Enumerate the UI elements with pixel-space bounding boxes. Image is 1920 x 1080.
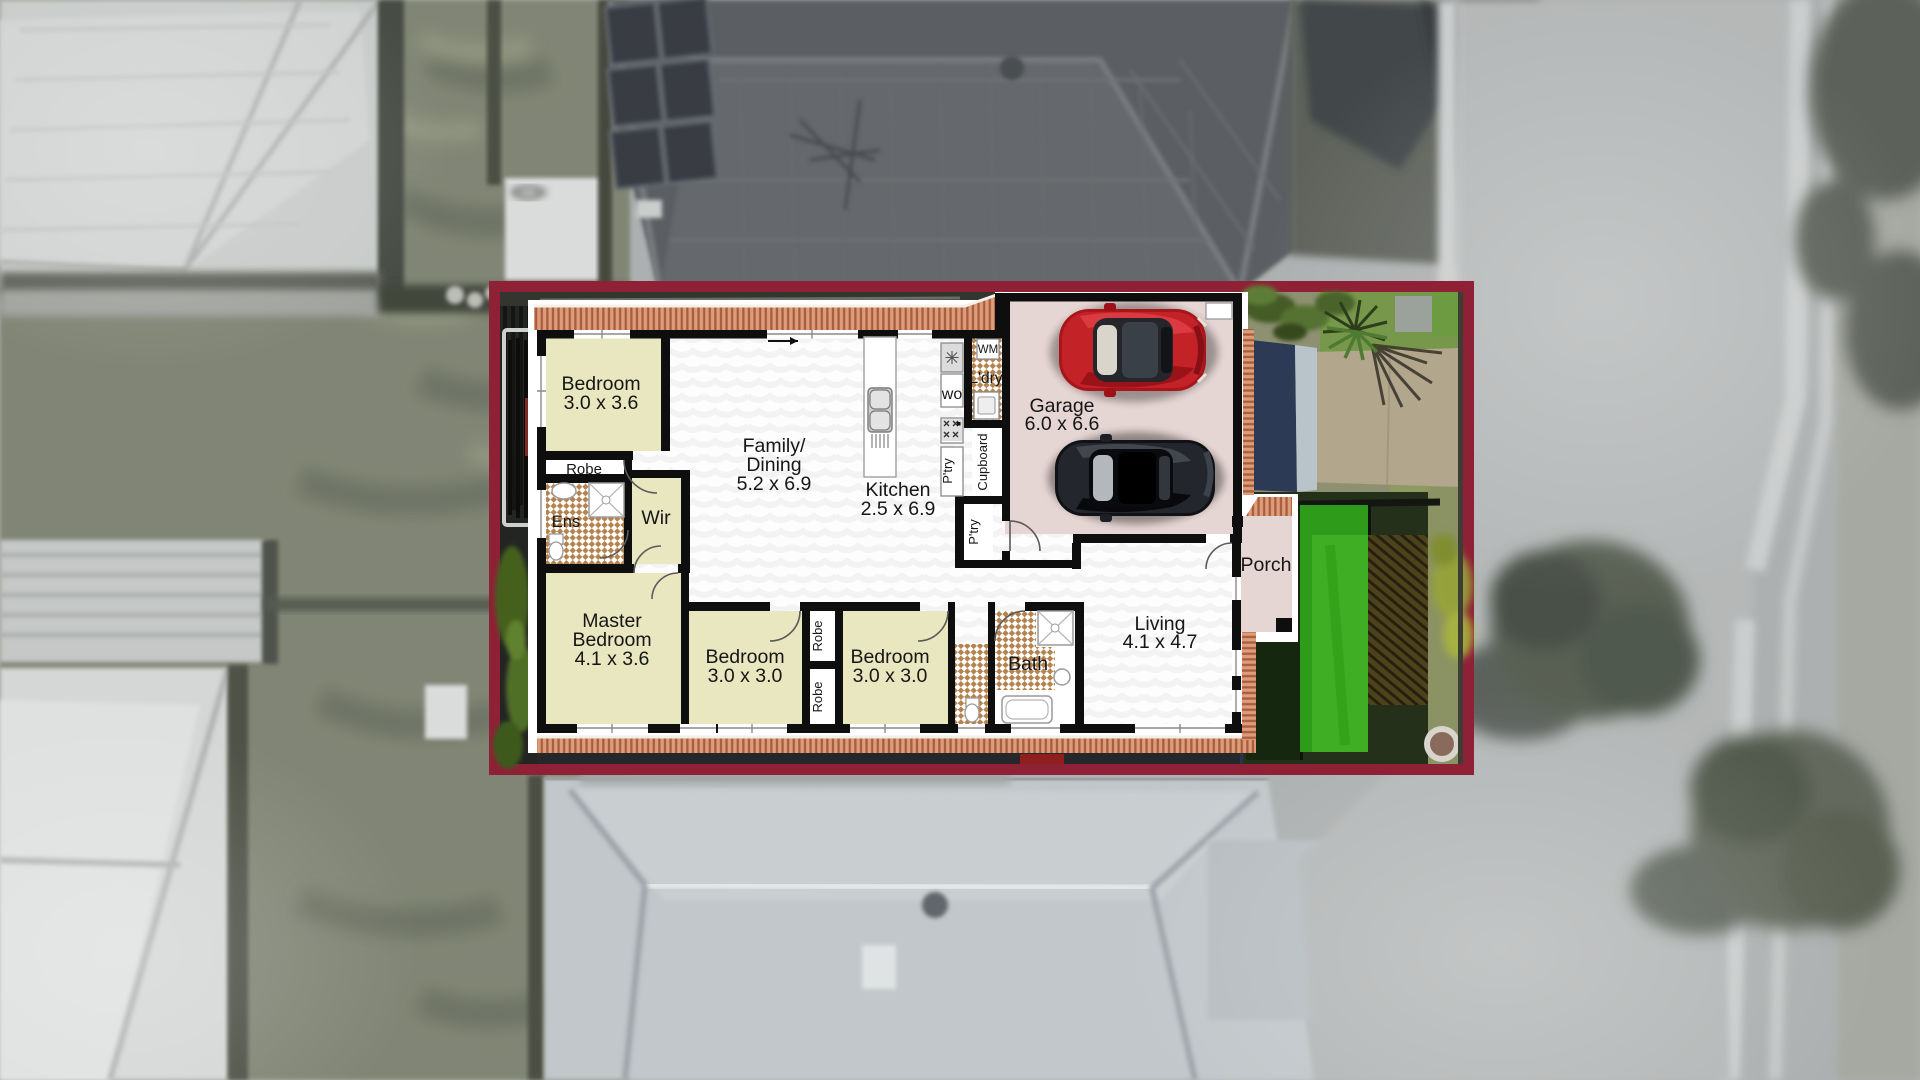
svg-text:3.0 x 3.0: 3.0 x 3.0 xyxy=(708,665,783,687)
svg-text:Porch: Porch xyxy=(1241,554,1292,576)
svg-text:Bath: Bath xyxy=(1008,653,1048,675)
svg-text:wo: wo xyxy=(941,386,963,403)
svg-text:Robe: Robe xyxy=(810,620,825,651)
svg-text:P'try: P'try xyxy=(940,458,955,484)
svg-text:WM: WM xyxy=(978,344,998,356)
svg-text:Robe: Robe xyxy=(810,681,825,712)
svg-text:4.1 x 4.7: 4.1 x 4.7 xyxy=(1123,631,1198,653)
svg-text:3.0 x 3.6: 3.0 x 3.6 xyxy=(564,392,639,414)
svg-text:6.0 x 6.6: 6.0 x 6.6 xyxy=(1025,413,1100,435)
svg-text:Robe: Robe xyxy=(566,461,602,478)
svg-text:3.0 x 3.0: 3.0 x 3.0 xyxy=(853,665,928,687)
svg-text:4.1 x 3.6: 4.1 x 3.6 xyxy=(575,648,650,670)
svg-text:L'dry: L'dry xyxy=(969,370,1002,387)
svg-text:Wir: Wir xyxy=(641,507,671,529)
svg-text:5.2 x 6.9: 5.2 x 6.9 xyxy=(737,473,812,495)
svg-text:P'try: P'try xyxy=(966,519,981,545)
svg-text:Ens: Ens xyxy=(552,513,580,531)
svg-text:Cupboard: Cupboard xyxy=(975,433,990,490)
svg-text:2.5 x 6.9: 2.5 x 6.9 xyxy=(861,498,936,520)
